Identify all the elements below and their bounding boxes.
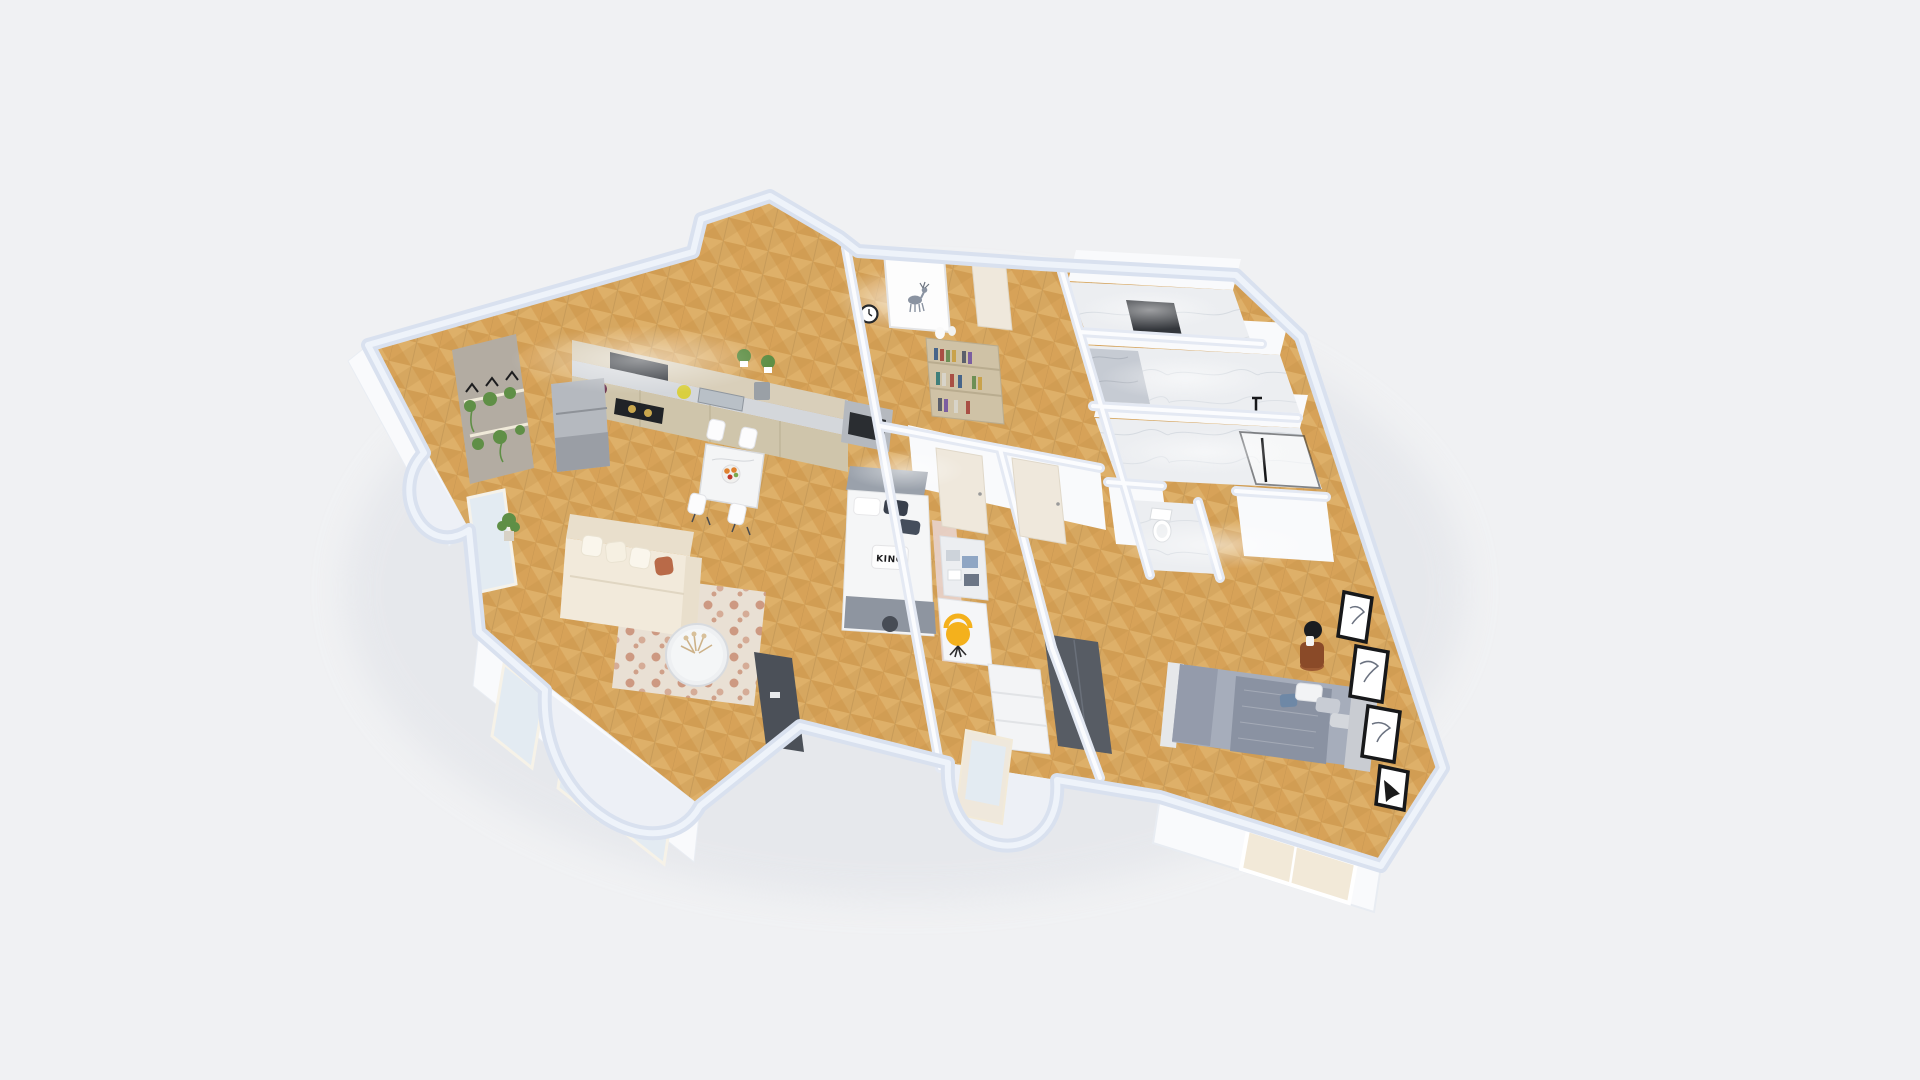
- round-cushion: [882, 616, 898, 632]
- coffee-machine: [754, 382, 770, 400]
- coffee-table: [666, 624, 728, 686]
- blue-pillow: [1280, 693, 1298, 707]
- deer-art: [884, 252, 950, 332]
- fruit-bowl: [722, 465, 740, 483]
- floorplan-viewport[interactable]: KING: [0, 0, 1920, 1080]
- entry-door: [972, 264, 1012, 330]
- rust-pillow: [654, 556, 674, 576]
- door-panel: [1012, 458, 1066, 544]
- floorplan-render: KING: [0, 0, 1920, 1080]
